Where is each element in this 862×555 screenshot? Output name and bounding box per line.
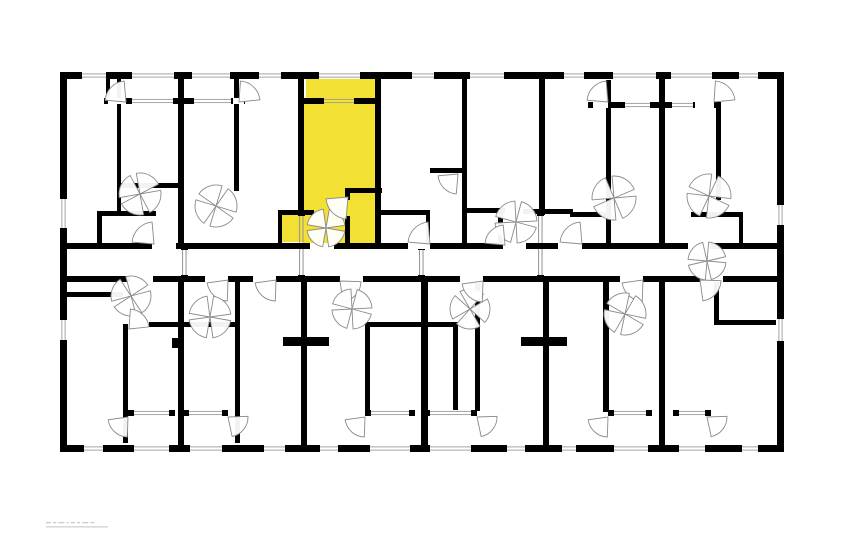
window-jamb [262,445,264,452]
window-jamb [318,445,320,452]
window-opening [777,317,784,343]
glazing-opening [623,102,652,108]
window-jamb [130,72,132,79]
window-jamb [132,445,134,452]
glazing-line [564,77,585,78]
wall [278,210,314,215]
glazing-line [430,411,472,412]
glazing-line [625,103,651,104]
window-jamb [562,72,564,79]
glazing-line [134,414,170,415]
window-jamb [130,98,132,104]
glazing-line [264,446,286,447]
glazing-opening [670,102,695,108]
glazing-line [132,99,174,100]
window-jamb [82,445,84,452]
glazing-line [614,446,649,447]
window-jamb [103,445,105,452]
window-jamb [693,102,695,108]
glazing-line [189,414,223,415]
glazing-opening [187,410,224,416]
window-opening [740,445,760,452]
window-jamb [369,410,371,416]
glazing-line [319,73,361,74]
glazing-line [319,77,361,78]
glazing-line [430,450,472,451]
window-jamb [777,203,784,205]
wall [97,211,102,245]
window-jamb [192,98,194,104]
glazing-line [82,77,107,78]
glazing-line [614,414,647,415]
window-jamb [648,445,650,452]
glazing-line [613,73,657,74]
door-opening [695,102,714,108]
glazing-line [61,199,62,229]
glazing-line [679,450,706,451]
glazing-opening [428,445,473,452]
window-jamb [169,410,171,416]
window-jamb [525,445,527,452]
window-jamb [410,445,412,452]
glazing-line [507,446,526,447]
glazing-line [778,205,779,226]
glazing-line [61,320,62,341]
glazing-line [470,77,505,78]
window-jamb [132,410,134,416]
glazing-line [412,73,435,74]
window-jamb [505,445,507,452]
watermark-mark [77,522,80,523]
glazing-opening [188,445,224,452]
watermark-mark [53,522,56,523]
glazing-opening [192,98,233,104]
partition-line [419,249,420,276]
window-jamb [777,341,784,343]
wall [97,211,156,216]
wall [739,217,743,245]
window-jamb [705,410,707,416]
glazing-line [371,414,410,415]
wall [178,276,184,447]
glazing-line [259,73,282,74]
window-opening [318,445,340,452]
window-jamb [60,228,67,230]
glazing-line [412,77,435,78]
wall [365,322,424,327]
glazing-opening [132,445,171,452]
window-jamb [612,410,614,416]
glazing-line [613,77,657,78]
window-jamb [623,102,625,108]
wall [462,72,467,243]
glazing-line [132,73,175,74]
glazing-line [679,411,706,412]
glazing-line [84,450,104,451]
glazing-opening [428,410,473,416]
wall [421,276,428,447]
watermark-mark [58,522,64,523]
window-jamb [231,98,233,104]
window-jamb [173,98,175,104]
glazing-opening [190,72,232,79]
glazing-line [562,450,577,451]
window-jamb [712,72,714,79]
window-jamb [677,445,679,452]
glazing-line [742,450,759,451]
window-jamb [281,72,283,79]
window-jamb [471,445,473,452]
glazing-line [507,450,526,451]
wall [424,322,458,327]
window-jamb [646,410,648,416]
glazing-line [778,319,779,342]
watermark-mark [71,522,75,523]
glazing-line [194,99,232,100]
window-jamb [354,98,356,104]
glazing-opening [677,445,707,452]
partition-line [186,249,187,276]
wall [345,216,350,245]
glazing-line [782,205,783,226]
glazing-line [370,450,411,451]
window-opening [60,318,67,342]
window-jamb [669,72,671,79]
glazing-line [430,446,472,447]
window-jamb [777,317,784,319]
window-jamb [656,72,658,79]
glazing-line [192,73,231,74]
window-jamb [368,445,370,452]
window-jamb [106,72,108,79]
glazing-opening [369,410,411,416]
wall [430,168,464,173]
window-jamb [409,410,411,416]
window-jamb [504,72,506,79]
window-jamb [758,445,760,452]
window-jamb [190,72,192,79]
door-opening [152,243,176,249]
glazing-line [782,319,783,342]
glazing-opening [317,72,362,79]
window-jamb [360,72,362,79]
window-jamb [60,197,67,199]
window-jamb [471,410,473,416]
wall [659,72,665,249]
window-jamb [650,102,652,108]
wall [234,79,239,191]
highlighted-unit-area[interactable] [306,79,375,98]
window-jamb [410,72,412,79]
window-jamb [670,102,672,108]
glazing-line [190,446,223,447]
window-jamb [428,410,430,416]
window-jamb [60,340,67,342]
glazing-line [320,450,339,451]
glazing-line [562,446,577,447]
glazing-line [614,450,649,451]
glazing-line [84,446,104,447]
floor-plan-page [0,0,862,555]
window-jamb [434,72,436,79]
door-opening [503,243,526,249]
window-jamb [611,72,613,79]
glazing-line [134,411,170,412]
wall [521,337,567,346]
wall [278,212,282,244]
watermark-mark [82,522,88,523]
wall [298,72,304,215]
wall [365,323,370,412]
glazing-line [132,77,175,78]
glazing-line [625,106,651,107]
window-jamb [188,445,190,452]
window-opening [468,72,506,79]
glazing-line [190,450,223,451]
glazing-line [739,73,759,74]
floor-plan [0,0,862,555]
glazing-opening [612,410,648,416]
glazing-opening [130,72,176,79]
window-jamb [576,445,578,452]
wall [283,337,329,346]
window-jamb [187,410,189,416]
window-jamb [737,72,739,79]
wall [381,210,430,215]
window-opening [257,72,283,79]
glazing-opening [132,410,171,416]
window-jamb [777,225,784,227]
glazing-line [671,77,713,78]
window-jamb [584,72,586,79]
window-jamb [560,445,562,452]
glazing-line [371,411,410,412]
window-opening [60,197,67,230]
glazing-line [739,77,759,78]
window-jamb [60,318,67,320]
window-jamb [222,410,224,416]
window-jamb [257,72,259,79]
glazing-line [259,77,282,78]
glazing-line [192,77,231,78]
window-opening [560,445,578,452]
watermark-mark [90,522,94,523]
wall [714,320,776,325]
glazing-line [82,73,107,74]
wall [659,276,665,447]
window-jamb [322,98,324,104]
wall [172,338,180,348]
door-opening [593,102,608,108]
wall [453,323,458,412]
wall [60,72,67,452]
window-opening [562,72,586,79]
window-opening [262,445,287,452]
glazing-line [470,73,505,74]
glazing-line [134,446,170,447]
wall [543,276,549,447]
glazing-line [194,102,232,103]
window-jamb [169,445,171,452]
glazing-line [370,446,411,447]
watermark-mark [46,526,108,528]
window-jamb [230,72,232,79]
window-jamb [285,445,287,452]
window-jamb [428,445,430,452]
window-opening [80,72,108,79]
glazing-line [430,414,472,415]
glazing-line [65,199,66,229]
window-opening [505,445,527,452]
window-jamb [80,72,82,79]
glazing-line [320,446,339,447]
window-jamb [317,72,319,79]
window-opening [410,72,436,79]
watermark-mark [67,522,69,523]
glazing-line [132,102,174,103]
glazing-line [65,320,66,341]
glazing-line [671,73,713,74]
window-opening [777,203,784,227]
wall [777,72,784,452]
glazing-opening [612,445,650,452]
glazing-opening [322,98,356,104]
glazing-line [264,450,286,451]
highlighted-unit-area[interactable] [281,215,304,242]
partition-line [423,249,424,276]
wall [539,72,545,215]
partition-line [182,249,183,276]
glazing-line [672,106,694,107]
window-jamb [338,445,340,452]
window-opening [82,445,105,452]
glazing-opening [669,72,714,79]
window-jamb [612,445,614,452]
window-jamb [705,445,707,452]
glazing-line [679,414,706,415]
glazing-line [564,73,585,74]
window-jamb [222,445,224,452]
glazing-opening [368,445,412,452]
glazing-opening [611,72,658,79]
glazing-line [614,411,647,412]
glazing-line [134,450,170,451]
window-jamb [758,72,760,79]
glazing-opening [130,98,175,104]
glazing-opening [677,410,707,416]
watermark-mark [46,522,51,523]
glazing-line [189,411,223,412]
wall [301,276,307,447]
glazing-line [679,446,706,447]
window-opening [737,72,760,79]
glazing-line [742,446,759,447]
window-jamb [677,410,679,416]
window-jamb [468,72,470,79]
glazing-line [324,102,355,103]
glazing-line [672,103,694,104]
wall [345,188,382,193]
glazing-line [324,99,355,100]
window-jamb [740,445,742,452]
window-jamb [174,72,176,79]
